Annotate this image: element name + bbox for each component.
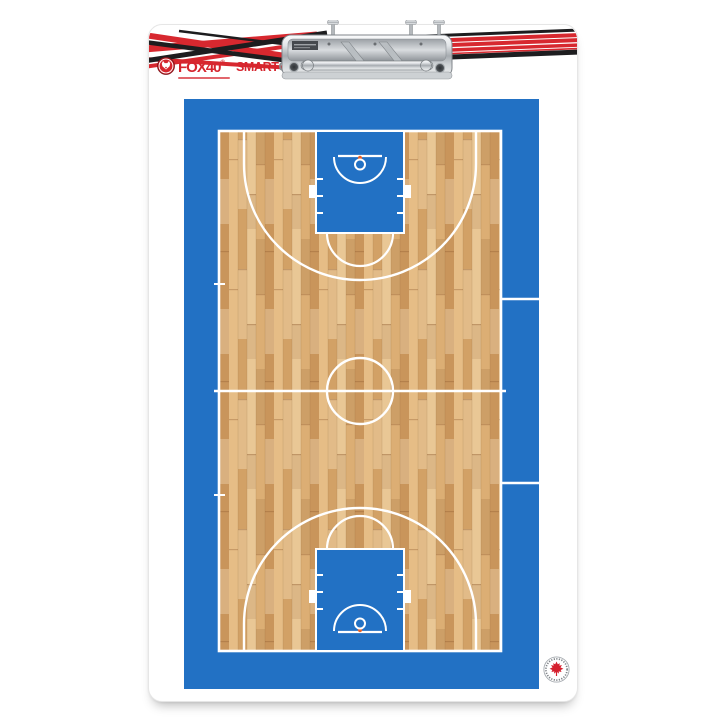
lane-block-top-right	[404, 185, 411, 198]
key-bottom	[316, 549, 404, 651]
clip-pins	[328, 20, 445, 37]
lane-block-bottom-right	[404, 590, 411, 603]
basketball-court-graphic	[184, 99, 539, 689]
clip-lever-bar	[301, 61, 433, 70]
clipboard-clip	[279, 20, 455, 92]
fox40-text: FOX40	[178, 59, 221, 76]
clip-bottom-lip	[282, 72, 452, 79]
lane-block-top-left	[309, 185, 316, 198]
coaching-board: FOX40® SMARTCOACH®	[148, 24, 578, 702]
fox40-url-text	[178, 77, 230, 80]
fox40-wordmark: FOX40®	[178, 56, 230, 75]
clip-label-plate	[292, 41, 318, 50]
fox40-registered-mark: ®	[221, 60, 225, 66]
court-svg	[184, 99, 539, 689]
clip-knob-right	[421, 60, 432, 71]
smart-text: SMART	[236, 60, 278, 74]
clip-screw-hole-right	[435, 63, 444, 72]
clip-screw-hole-left	[289, 62, 298, 71]
clip-knob-left	[303, 60, 314, 71]
made-in-canada-badge	[543, 656, 570, 683]
fox40-wordmark-block: FOX40®	[178, 56, 230, 79]
fox40-badge-icon	[157, 57, 175, 75]
product-photo-background: { "product": { "description": "Fox 40 Sm…	[0, 0, 720, 720]
lane-block-bottom-left	[309, 590, 316, 603]
